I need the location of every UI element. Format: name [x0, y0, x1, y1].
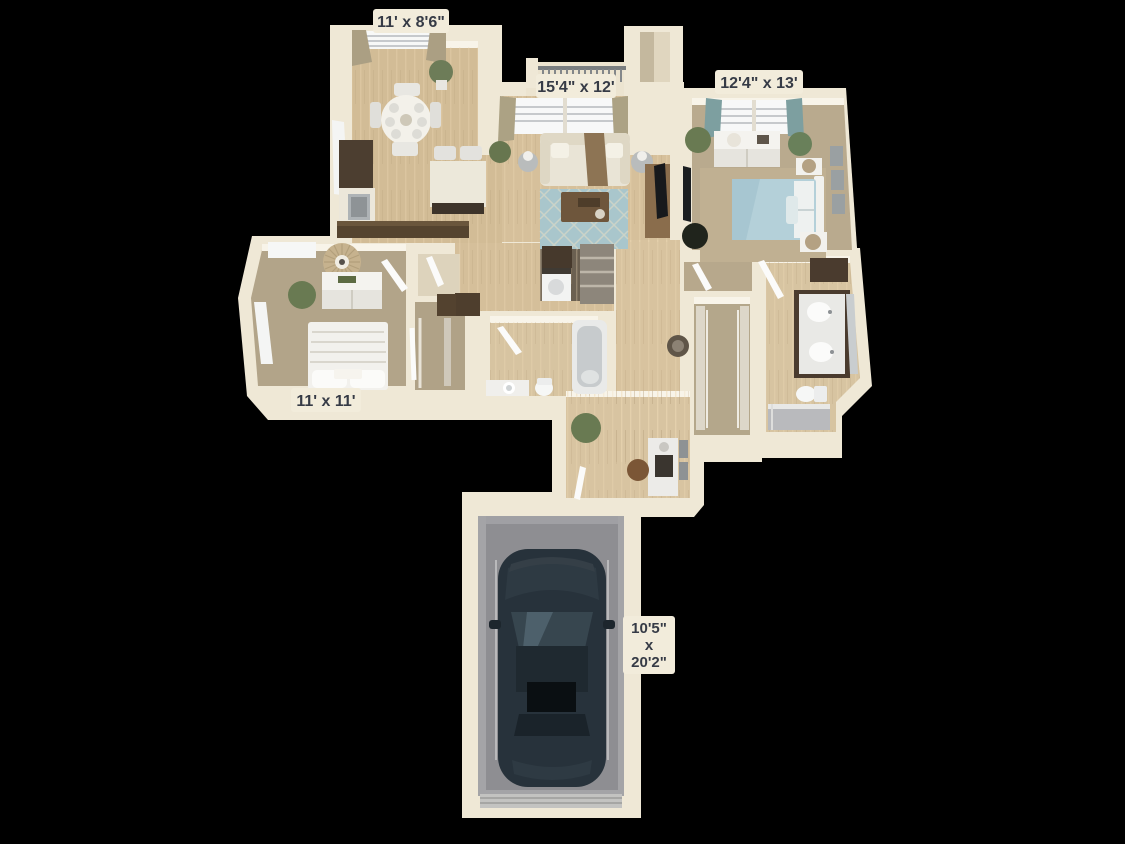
- svg-text:12'4" x 13': 12'4" x 13': [720, 75, 797, 92]
- svg-text:x: x: [645, 637, 654, 654]
- svg-text:11' x 11': 11' x 11': [296, 393, 355, 410]
- svg-text:10'5": 10'5": [631, 620, 667, 637]
- svg-text:15'4" x 12': 15'4" x 12': [537, 79, 614, 96]
- svg-text:20'2": 20'2": [631, 654, 667, 671]
- svg-text:11' x 8'6": 11' x 8'6": [377, 14, 445, 31]
